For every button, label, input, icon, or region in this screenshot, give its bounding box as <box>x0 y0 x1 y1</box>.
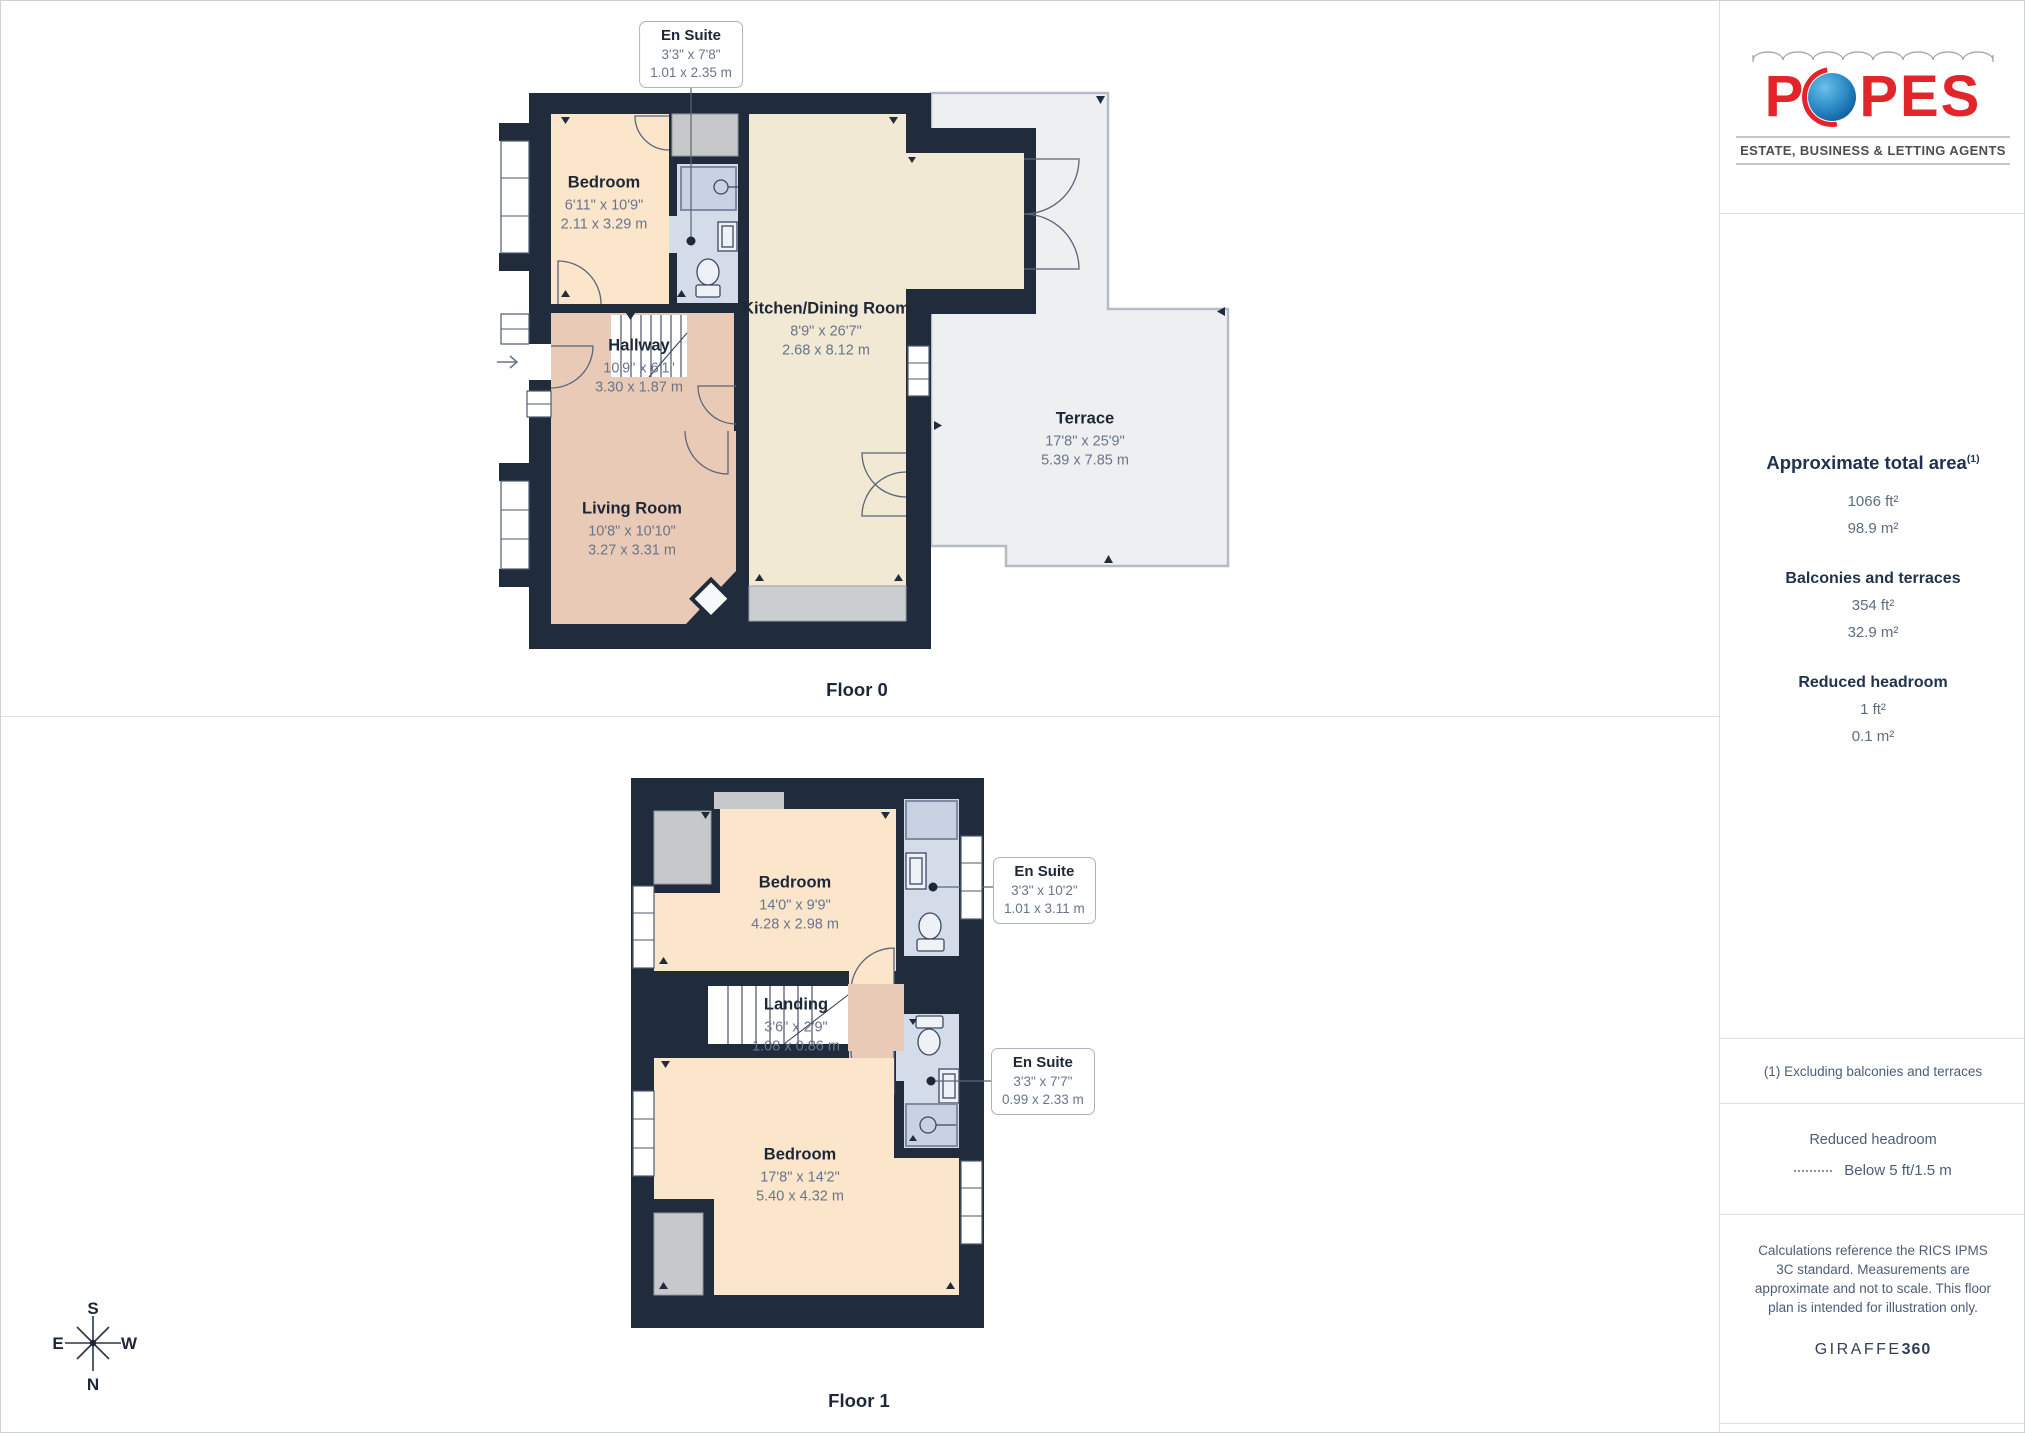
disclaimer-text: Calculations reference the RICS IPMS 3C … <box>1750 1241 1996 1317</box>
floorplan-page: S N E W En Suite 3'3" x 7'8" 1.01 x 2.35… <box>0 0 2025 1433</box>
entrance-arrow-icon <box>497 356 517 368</box>
dotted-line-icon <box>1794 1170 1832 1172</box>
shower-symbol <box>906 801 957 839</box>
area-summary-section: Approximate total area(1) 1066 ft² 98.9 … <box>1720 214 2025 1039</box>
disclaimer-section: Calculations reference the RICS IPMS 3C … <box>1720 1215 2025 1424</box>
compass-e: E <box>52 1334 63 1353</box>
label-landing: Landing 3'6" x 2'9" 1.08 x 0.86 m <box>752 996 840 1057</box>
reduced-headroom-ft: 1 ft² <box>1720 696 2025 723</box>
label-bedroom-floor0: Bedroom 6'11" x 10'9" 2.11 x 3.29 m <box>561 174 648 235</box>
legend-section: Reduced headroom Below 5 ft/1.5 m <box>1720 1104 2025 1215</box>
floorplan-drawing: S N E W <box>1 1 1719 1433</box>
floor0-title: Floor 0 <box>826 679 888 701</box>
label-bedroom1-bottom: Bedroom 17'8" x 14'2" 5.40 x 4.32 m <box>756 1146 844 1207</box>
ensuite2-door-opening <box>896 1051 904 1081</box>
label-terrace: Terrace 17'8" x 25'9" 5.39 x 7.85 m <box>1041 410 1129 471</box>
kitchen-counter <box>749 586 906 621</box>
callout-ensuite1: En Suite 3'3" x 10'2" 1.01 x 3.11 m <box>993 857 1096 924</box>
label-living-room: Living Room 10'8" x 10'10" 3.27 x 3.31 m <box>582 500 682 561</box>
closet-floor1-top <box>654 811 711 884</box>
door-opening <box>849 971 894 984</box>
reduced-headroom-heading: Reduced headroom <box>1720 670 2025 696</box>
closet-floor1-bottom <box>654 1213 703 1295</box>
logo-letters-pes: PES <box>1859 68 1981 126</box>
toilet-symbol <box>918 1029 940 1055</box>
footnote-text: (1) Excluding balconies and terraces <box>1764 1064 1982 1079</box>
ensuite0-door-opening <box>669 216 677 253</box>
giraffe360-brand: GIRAFFE360 <box>1750 1340 1996 1359</box>
callout-dot-floor0 <box>687 237 696 246</box>
balconies-ft: 354 ft² <box>1720 592 2025 619</box>
entrance-opening <box>529 344 551 380</box>
compass-icon: S N E W <box>52 1299 138 1394</box>
footnote-section: (1) Excluding balconies and terraces <box>1720 1039 2025 1104</box>
legend-value: Below 5 ft/1.5 m <box>1844 1162 1952 1179</box>
balconies-m: 32.9 m² <box>1720 619 2025 646</box>
callout-dot-ensuite2 <box>927 1077 936 1086</box>
total-area-title: Approximate total area(1) <box>1720 452 2025 474</box>
reduced-headroom-m: 0.1 m² <box>1720 723 2025 750</box>
callout-ensuite2: En Suite 3'3" x 7'7" 0.99 x 2.33 m <box>991 1048 1095 1115</box>
callout-ensuite-floor0: En Suite 3'3" x 7'8" 1.01 x 2.35 m <box>639 21 743 88</box>
compass-s: S <box>87 1299 98 1318</box>
agency-logo-section: P PES ESTATE, BUSINESS & LETTING AGENTS <box>1720 1 2025 214</box>
toilet-symbol <box>919 913 941 939</box>
label-hallway: Hallway 10'9" x 6'1" 3.30 x 1.87 m <box>595 337 683 398</box>
popes-logo: P PES <box>1765 68 1982 126</box>
logo-letter-p: P <box>1765 68 1806 126</box>
sidebar: P PES ESTATE, BUSINESS & LETTING AGENTS … <box>1719 1 2025 1433</box>
callout-dot-ensuite1 <box>929 883 938 892</box>
label-bedroom1-top: Bedroom 14'0" x 9'9" 4.28 x 2.98 m <box>751 874 839 935</box>
balconies-heading: Balconies and terraces <box>1720 566 2025 592</box>
room-landing <box>848 984 904 1051</box>
floor1-top-gray <box>714 792 784 809</box>
closet-floor0 <box>672 114 738 156</box>
legend-title: Reduced headroom <box>1720 1132 2025 1148</box>
label-kitchen-dining: Kitchen/Dining Room 8'9" x 26'7" 2.68 x … <box>742 300 910 361</box>
door-opening <box>849 1044 894 1058</box>
floor1-title: Floor 1 <box>828 1390 890 1412</box>
total-area-ft: 1066 ft² <box>1720 488 2025 515</box>
logo-tagline: ESTATE, BUSINESS & LETTING AGENTS <box>1736 136 2010 165</box>
compass-w: W <box>121 1334 138 1353</box>
toilet-symbol <box>697 259 719 285</box>
compass-n: N <box>87 1375 99 1394</box>
total-area-m: 98.9 m² <box>1720 515 2025 542</box>
logo-globe-icon <box>1808 73 1856 121</box>
section-divider <box>1 716 1719 717</box>
